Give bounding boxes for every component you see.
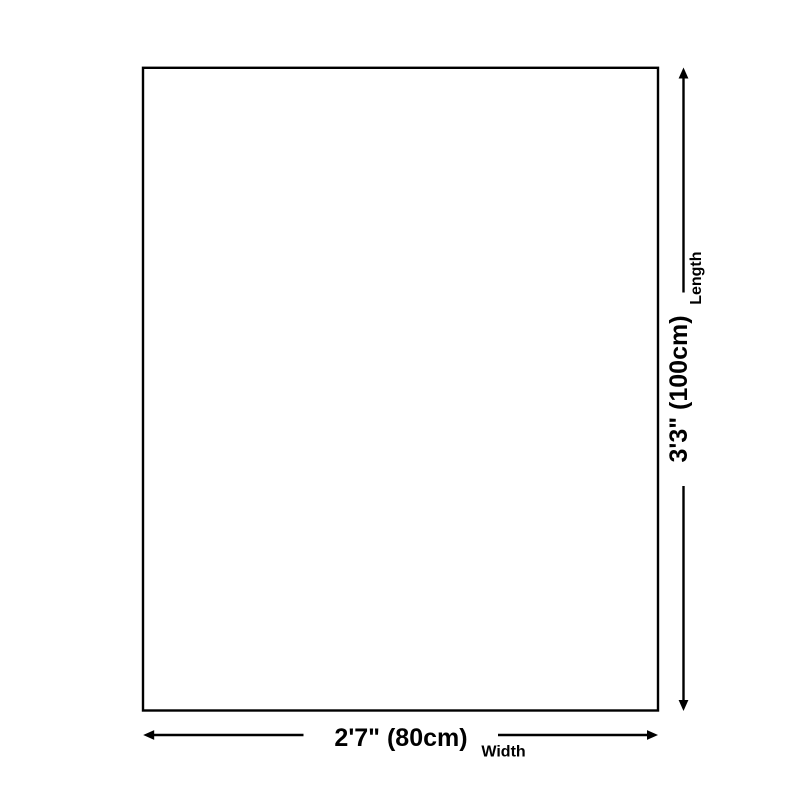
svg-text:Width: Width — [481, 744, 525, 761]
svg-text:2'7" (80cm): 2'7" (80cm) — [334, 724, 467, 752]
svg-text:3'3" (100cm): 3'3" (100cm) — [665, 315, 693, 462]
svg-text:Length: Length — [688, 251, 705, 304]
